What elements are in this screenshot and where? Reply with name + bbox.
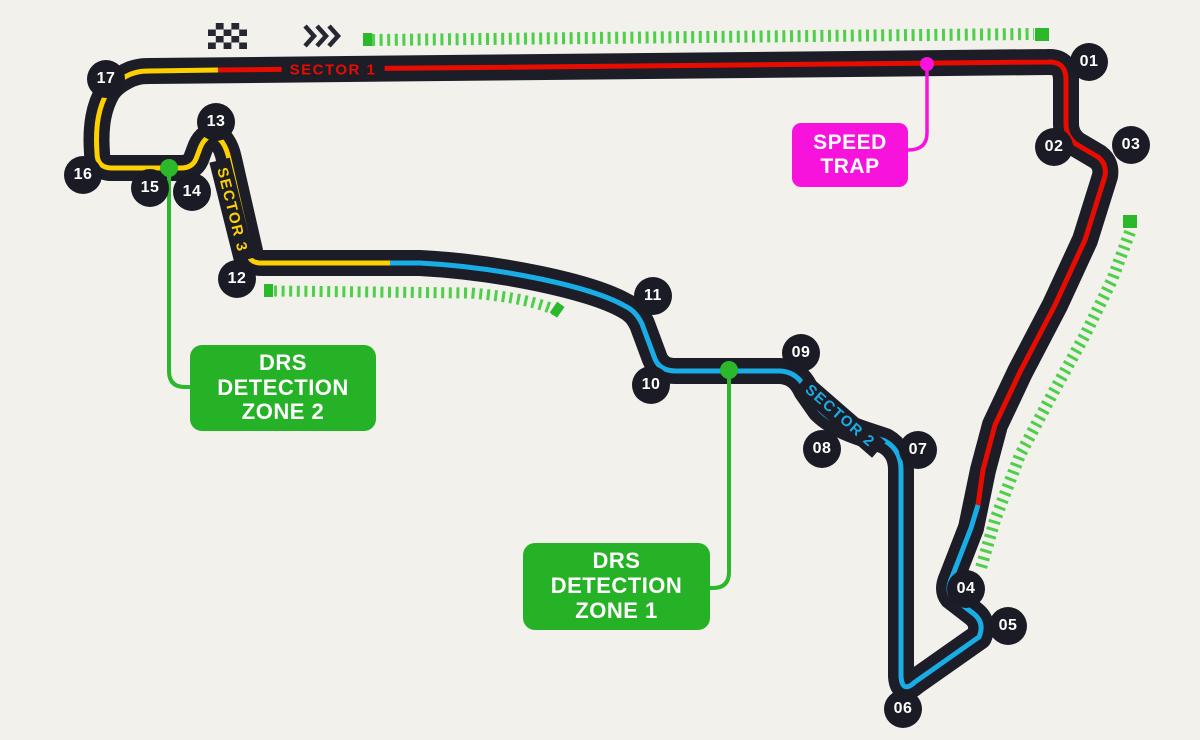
corner-marker-10: 10	[632, 366, 670, 404]
drs-zone-1-connector	[709, 377, 729, 588]
drs-zone-2-line2: DETECTION	[217, 376, 349, 401]
corner-marker-08: 08	[803, 430, 841, 468]
sector-1-label: SECTOR 1	[282, 60, 385, 81]
drs-zone-1-line2: DETECTION	[551, 574, 683, 599]
drs-zone-1-line3: ZONE 1	[575, 599, 657, 624]
drs-zone-dashes-middle	[274, 291, 559, 312]
corner-marker-07: 07	[899, 431, 937, 469]
drs-zone-2-line3: ZONE 2	[242, 400, 324, 425]
drs-zone-endblock-right-top	[1123, 215, 1137, 228]
corner-marker-14: 14	[173, 173, 211, 211]
corner-marker-13: 13	[197, 103, 235, 141]
drs-zone-dashes-top	[372, 34, 1034, 40]
corner-marker-09: 09	[782, 334, 820, 372]
speed-trap-label-line2: TRAP	[820, 155, 879, 179]
corner-marker-15: 15	[131, 169, 169, 207]
drs-detection-dot-zone-1	[720, 361, 738, 379]
corner-marker-16: 16	[64, 156, 102, 194]
drs-detection-zone-1-label: DRS DETECTION ZONE 1	[523, 543, 710, 630]
drs-zone-endblock-top-left	[363, 33, 372, 46]
speed-trap-dot	[920, 57, 934, 71]
corner-marker-12: 12	[218, 260, 256, 298]
race-direction-arrows-icon	[302, 24, 342, 48]
speed-trap-connector	[908, 64, 927, 150]
checkered-flag-icon	[208, 23, 247, 49]
drs-zone-1-line1: DRS	[593, 549, 641, 574]
drs-zone-endblock-middle-left	[264, 284, 273, 297]
corner-marker-01: 01	[1070, 43, 1108, 81]
corner-marker-11: 11	[634, 277, 672, 315]
speed-trap-label-line1: SPEED	[813, 131, 887, 155]
corner-marker-02: 02	[1035, 128, 1073, 166]
speed-trap-label: SPEED TRAP	[792, 123, 908, 187]
circuit-map: SECTOR 1 SECTOR 2 SECTOR 3 01 02 03 04 0…	[0, 0, 1200, 740]
drs-detection-zone-2-label: DRS DETECTION ZONE 2	[190, 345, 376, 431]
corner-marker-06: 06	[884, 690, 922, 728]
corner-marker-05: 05	[989, 607, 1027, 645]
drs-zone-2-line1: DRS	[259, 351, 307, 376]
corner-marker-17: 17	[87, 60, 125, 98]
corner-marker-03: 03	[1112, 126, 1150, 164]
drs-zone-endblock-top-right	[1035, 28, 1049, 41]
drs-zone-endblock-middle-right	[550, 302, 565, 318]
corner-marker-04: 04	[947, 570, 985, 608]
